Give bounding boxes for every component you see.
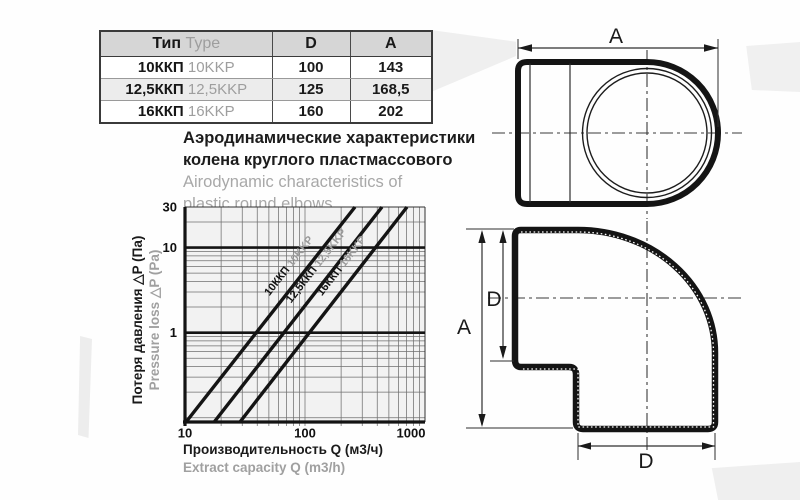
cell-type-ru: 10ККП [138, 59, 184, 76]
dimensions-table: Тип Type D A 10ККП 10KKP 100 143 12,5ККП… [99, 30, 433, 124]
x-axis-title: Производительность Q (м3/ч) Extract capa… [183, 441, 383, 477]
y-tick-label: 10 [163, 240, 177, 255]
x-tick-label: 10 [178, 426, 192, 441]
arrowhead-right [702, 442, 715, 449]
cell-type-en: 12,5KKP [188, 81, 247, 98]
dim-label-d-bottom: D [638, 450, 653, 473]
y-tick-label: 30 [163, 200, 177, 215]
y-tick-label: 1 [170, 325, 177, 340]
cell-d: 160 [272, 101, 350, 124]
technical-drawing: A A D D [440, 0, 800, 490]
catalog-page: Тип Type D A 10ККП 10KKP 100 143 12,5ККП… [0, 0, 800, 500]
cell-type-en: 16KKP [188, 103, 235, 120]
cell-type-en: 10KKP [188, 59, 235, 76]
header-type-en: Type [185, 35, 220, 52]
col-header-a: A [350, 31, 432, 57]
x-tick-label: 100 [294, 426, 316, 441]
cell-d: 100 [272, 57, 350, 79]
title-en-line1: Airodynamic characteristics of [183, 171, 475, 193]
page-shadow [78, 336, 92, 438]
elbow-side-view: A D D [457, 221, 744, 473]
table-header-row: Тип Type D A [100, 31, 432, 57]
y-axis-title: Потеря давления △P (Па) Pressure loss △P… [129, 200, 163, 440]
table-row: 12,5ККП 12,5KKP 125 168,5 [100, 79, 432, 101]
arrowhead-left [518, 44, 532, 52]
elbow-top-view: A [492, 25, 742, 219]
elbow-body-outline [515, 230, 715, 429]
table-row: 16ККП 16KKP 160 202 [100, 101, 432, 124]
arrowhead-right [704, 44, 718, 52]
arrowhead-up [478, 230, 485, 243]
col-header-d: D [272, 31, 350, 57]
dim-label-a-side: A [457, 316, 471, 339]
cell-a: 202 [350, 101, 432, 124]
pressure-loss-chart: 10ККП 10KKP12,5ККП 12,5KKP16ККП 16KKP301… [120, 195, 442, 445]
col-header-type: Тип Type [100, 31, 272, 57]
arrowhead-left [578, 442, 591, 449]
cell-a: 143 [350, 57, 432, 79]
title-ru-line1: Аэродинамические характеристики [183, 127, 475, 149]
cell-d: 125 [272, 79, 350, 101]
x-axis-title-ru: Производительность Q (м3/ч) [183, 441, 383, 459]
title-ru-line2: колена круглого пластмассового [183, 149, 475, 171]
stippled-wall-line [521, 232, 714, 427]
cell-type-ru: 16ККП [138, 103, 184, 120]
x-axis-title-en: Extract capacity Q (m3/h) [183, 459, 383, 477]
y-axis-title-en: Pressure loss △P (Pa) [146, 200, 163, 440]
dim-label-d-side: D [486, 288, 501, 311]
cell-type-ru: 12,5ККП [125, 81, 183, 98]
dim-label-a-top: A [609, 25, 623, 48]
y-axis-title-ru: Потеря давления △P (Па) [129, 200, 146, 440]
cell-a: 168,5 [350, 79, 432, 101]
arrowhead-down [499, 346, 506, 359]
header-type-ru: Тип [152, 35, 181, 52]
arrowhead-up [499, 230, 506, 243]
table-row: 10ККП 10KKP 100 143 [100, 57, 432, 79]
arrowhead-down [478, 414, 485, 427]
x-tick-label: 1000 [397, 426, 426, 441]
